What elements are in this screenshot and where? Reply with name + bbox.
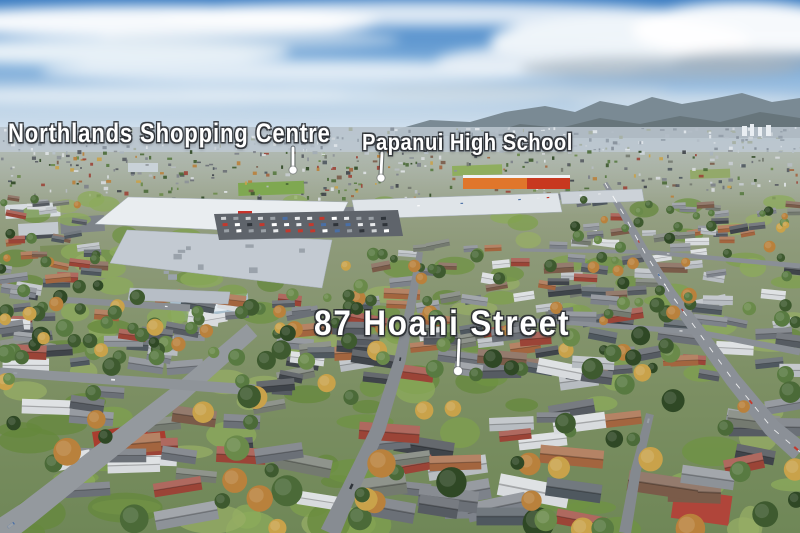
- pointer-dot-northlands: [289, 166, 297, 174]
- park-field: [238, 181, 304, 196]
- aerial-scene-illustration: [0, 0, 800, 533]
- park-field: [452, 164, 502, 176]
- pointer-dot-papanui: [377, 174, 385, 182]
- building-roof: [18, 222, 59, 236]
- pointer-dot-hoani: [454, 367, 463, 376]
- pointer-line-papanui: [381, 153, 382, 174]
- aerial-photo: Northlands Shopping Centre Papanui High …: [0, 0, 800, 533]
- building-roof: [128, 163, 158, 172]
- park-field: [690, 169, 730, 179]
- label-northlands-shopping-centre: Northlands Shopping Centre: [8, 119, 331, 147]
- pointer-line-hoani: [458, 340, 459, 366]
- label-87-hoani-street: 87 Hoani Street: [314, 306, 570, 343]
- label-papanui-high-school: Papanui High School: [362, 130, 573, 154]
